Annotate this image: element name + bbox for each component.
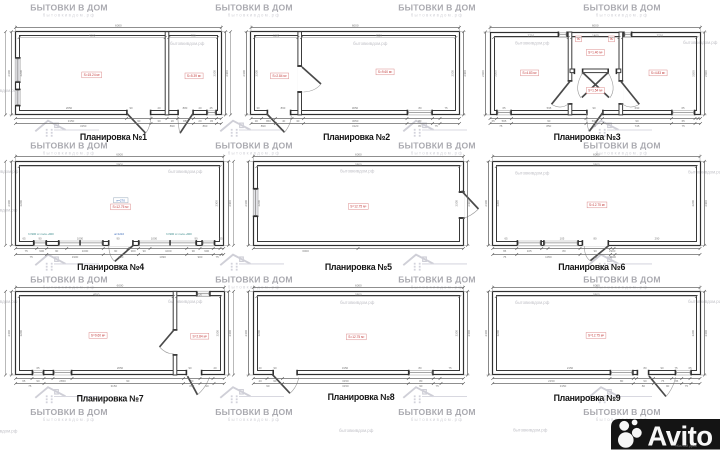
- svg-text:90: 90: [273, 379, 277, 383]
- svg-text:75: 75: [28, 384, 32, 388]
- svg-text:бытовкивдом.рф: бытовкивдом.рф: [688, 299, 720, 304]
- svg-text:2400: 2400: [244, 330, 248, 337]
- svg-text:2400: 2400: [467, 200, 471, 207]
- svg-text:690: 690: [635, 106, 640, 110]
- svg-text:2150: 2150: [567, 366, 574, 370]
- svg-text:Планировка №3: Планировка №3: [554, 132, 621, 142]
- svg-text:80: 80: [418, 124, 422, 128]
- svg-text:290: 290: [655, 237, 660, 241]
- svg-text:5800: 5800: [355, 162, 362, 166]
- svg-text:бытовкивдом.рф: бытовкивдом.рф: [339, 428, 374, 433]
- svg-text:Планировка №9: Планировка №9: [554, 393, 621, 403]
- svg-text:2200: 2200: [257, 330, 261, 337]
- svg-text:30: 30: [255, 119, 259, 123]
- svg-text:бытовкивдом.рф: бытовкивдом.рф: [168, 169, 203, 174]
- svg-text:890: 890: [189, 384, 194, 388]
- svg-text:2150: 2150: [548, 379, 555, 383]
- svg-text:2400: 2400: [7, 200, 11, 207]
- svg-text:бытовкивдом.рф: бытовкивдом.рф: [228, 13, 281, 18]
- svg-text:бытовкивдом.рф: бытовкивдом.рф: [515, 171, 550, 176]
- svg-text:бытовкивдом.рф: бытовкивдом.рф: [515, 300, 550, 305]
- svg-text:900: 900: [204, 249, 209, 253]
- svg-text:2400: 2400: [484, 200, 488, 207]
- svg-text:65: 65: [22, 237, 26, 241]
- svg-text:S=2.84 м²: S=2.84 м²: [193, 335, 207, 339]
- svg-text:65: 65: [503, 249, 507, 253]
- svg-text:90: 90: [205, 384, 209, 388]
- svg-text:1000: 1000: [77, 237, 84, 241]
- svg-text:1900: 1900: [72, 255, 79, 259]
- svg-text:1200: 1200: [196, 292, 203, 296]
- svg-text:5800: 5800: [593, 162, 600, 166]
- svg-text:65: 65: [22, 379, 26, 383]
- svg-text:75: 75: [30, 255, 34, 259]
- svg-text:20: 20: [198, 106, 202, 110]
- svg-text:2200: 2200: [255, 70, 259, 77]
- svg-text:2200: 2200: [496, 200, 500, 207]
- svg-text:80: 80: [620, 379, 624, 383]
- svg-text:БЫТОВКИ В ДОМ: БЫТОВКИ В ДОМ: [215, 141, 293, 151]
- svg-text:90: 90: [36, 379, 40, 383]
- svg-text:3150: 3150: [342, 384, 349, 388]
- svg-text:75: 75: [674, 366, 678, 370]
- svg-text:6000: 6000: [593, 152, 600, 156]
- svg-text:75: 75: [685, 384, 689, 388]
- svg-text:80: 80: [419, 379, 423, 383]
- svg-text:90: 90: [666, 384, 670, 388]
- svg-text:БЫТОВКИ В ДОМ: БЫТОВКИ В ДОМ: [215, 274, 293, 284]
- svg-text:н=270: н=270: [116, 199, 125, 203]
- svg-text:S=12.75 м²: S=12.75 м²: [112, 205, 128, 209]
- svg-text:40: 40: [258, 366, 262, 370]
- svg-text:80: 80: [593, 237, 597, 241]
- svg-text:2650: 2650: [59, 379, 66, 383]
- svg-text:80: 80: [594, 255, 598, 259]
- svg-text:6000: 6000: [355, 283, 362, 287]
- svg-text:75: 75: [448, 366, 452, 370]
- svg-text:3050: 3050: [352, 119, 359, 123]
- svg-text:S=12.75 м²: S=12.75 м²: [348, 335, 364, 339]
- svg-text:S=9.60 м²: S=9.60 м²: [91, 334, 105, 338]
- svg-text:860: 860: [203, 124, 208, 128]
- svg-text:20: 20: [213, 366, 217, 370]
- svg-text:2650: 2650: [66, 106, 73, 110]
- svg-text:2400: 2400: [481, 70, 485, 77]
- svg-text:80: 80: [418, 366, 422, 370]
- svg-text:3120: 3120: [352, 124, 359, 128]
- svg-text:90: 90: [547, 119, 551, 123]
- svg-text:910: 910: [118, 255, 123, 259]
- svg-text:1180: 1180: [273, 33, 280, 37]
- svg-text:4550: 4550: [375, 33, 382, 37]
- svg-text:6000: 6000: [117, 283, 124, 287]
- svg-text:80: 80: [562, 249, 566, 253]
- svg-text:2400: 2400: [467, 330, 471, 337]
- svg-text:75: 75: [444, 106, 448, 110]
- svg-text:6000: 6000: [302, 249, 309, 253]
- svg-text:бытовкивдом.рф: бытовкивдом.рф: [353, 41, 388, 46]
- svg-text:БЫТОВКИ В ДОМ: БЫТОВКИ В ДОМ: [398, 407, 476, 417]
- svg-text:Планировка №6: Планировка №6: [558, 262, 625, 272]
- svg-text:90: 90: [188, 366, 192, 370]
- svg-text:2400: 2400: [704, 70, 708, 77]
- svg-text:90: 90: [143, 249, 147, 253]
- svg-text:90: 90: [126, 379, 130, 383]
- svg-text:3150: 3150: [342, 366, 349, 370]
- svg-text:6000: 6000: [115, 23, 122, 27]
- svg-text:S=15.24 м²: S=15.24 м²: [84, 73, 100, 77]
- svg-text:595: 595: [547, 106, 552, 110]
- svg-text:БЫТОВКИ В ДОМ: БЫТОВКИ В ДОМ: [398, 2, 476, 12]
- svg-text:90: 90: [266, 384, 270, 388]
- svg-text:БЫТОВКИ В ДОМ: БЫТОВКИ В ДОМ: [30, 141, 108, 151]
- svg-text:3150: 3150: [68, 119, 75, 123]
- svg-text:бытовкивдом.рф: бытовкивдом.рф: [340, 300, 375, 305]
- svg-text:2400: 2400: [228, 330, 232, 337]
- svg-text:90: 90: [129, 106, 133, 110]
- svg-text:3150: 3150: [560, 384, 567, 388]
- svg-text:20: 20: [171, 119, 175, 123]
- svg-text:75: 75: [25, 249, 29, 253]
- svg-text:890: 890: [261, 124, 266, 128]
- svg-text:БЫТОВКИ В ДОМ: БЫТОВКИ В ДОМ: [30, 2, 108, 12]
- svg-text:2200: 2200: [691, 200, 695, 207]
- svg-text:бытовкивдом.рф: бытовкивдом.рф: [228, 151, 281, 156]
- svg-text:30: 30: [296, 119, 300, 123]
- svg-text:860: 860: [266, 119, 271, 123]
- svg-text:80: 80: [642, 384, 646, 388]
- svg-text:880: 880: [183, 119, 188, 123]
- svg-text:2710: 2710: [528, 33, 535, 37]
- svg-text:65: 65: [681, 106, 685, 110]
- svg-text:2400: 2400: [228, 200, 232, 207]
- svg-text:бытовкивдом.рф: бытовкивдом.рф: [513, 428, 548, 433]
- svg-text:h=900 от пола +900: h=900 от пола +900: [166, 232, 192, 236]
- svg-text:БЫТОВКИ В ДОМ: БЫТОВКИ В ДОМ: [583, 407, 661, 417]
- svg-text:45: 45: [210, 119, 214, 123]
- svg-text:2200: 2200: [451, 70, 455, 77]
- svg-text:20: 20: [157, 106, 161, 110]
- svg-text:90: 90: [114, 249, 118, 253]
- svg-text:1090: 1090: [159, 255, 166, 259]
- svg-text:1000: 1000: [82, 249, 89, 253]
- svg-text:860: 860: [281, 106, 286, 110]
- svg-text:бытовкивдом.рф: бытовкивдом.рф: [596, 13, 649, 18]
- svg-text:Планировка №2: Планировка №2: [323, 132, 390, 142]
- svg-text:S=12.75 м²: S=12.75 м²: [589, 203, 605, 207]
- svg-text:5800: 5800: [593, 292, 600, 296]
- svg-text:2200: 2200: [496, 330, 500, 337]
- svg-text:75: 75: [661, 379, 665, 383]
- svg-text:S=4.83 м²: S=4.83 м²: [522, 71, 536, 75]
- svg-text:75: 75: [503, 255, 507, 259]
- svg-text:2900: 2900: [610, 255, 617, 259]
- svg-text:745: 745: [635, 124, 640, 128]
- svg-text:4500: 4500: [93, 292, 100, 296]
- svg-text:Планировка №7: Планировка №7: [77, 394, 144, 404]
- svg-text:2200: 2200: [212, 70, 216, 77]
- svg-text:S=1.40 м²: S=1.40 м²: [588, 51, 602, 55]
- svg-text:2650: 2650: [117, 366, 124, 370]
- svg-text:3050: 3050: [352, 106, 359, 110]
- svg-text:5800: 5800: [355, 292, 362, 296]
- svg-text:690: 690: [592, 119, 597, 123]
- svg-text:S=12.75 м²: S=12.75 м²: [350, 205, 366, 209]
- svg-text:бытовкивдом.рф: бытовкивдом.рф: [43, 13, 96, 18]
- svg-text:90: 90: [137, 119, 141, 123]
- svg-text:6000: 6000: [355, 152, 362, 156]
- svg-text:3150: 3150: [111, 384, 118, 388]
- svg-text:850: 850: [546, 124, 551, 128]
- svg-text:780: 780: [191, 33, 196, 37]
- svg-text:2400: 2400: [242, 70, 246, 77]
- svg-text:90: 90: [660, 366, 664, 370]
- svg-text:Планировка №5: Планировка №5: [325, 262, 392, 272]
- svg-text:БЫТОВКИ В ДОМ: БЫТОВКИ В ДОМ: [215, 407, 293, 417]
- svg-text:Планировка №4: Планировка №4: [77, 262, 144, 272]
- svg-text:S=2.84 м²: S=2.84 м²: [272, 74, 286, 78]
- svg-text:65: 65: [504, 237, 508, 241]
- svg-text:65: 65: [688, 366, 692, 370]
- svg-text:2200: 2200: [455, 330, 459, 337]
- svg-text:6000: 6000: [352, 23, 359, 27]
- svg-text:75: 75: [435, 384, 439, 388]
- svg-text:20: 20: [198, 119, 202, 123]
- svg-text:2200: 2200: [691, 330, 695, 337]
- svg-text:Планировка №1: Планировка №1: [80, 132, 147, 142]
- svg-text:2200: 2200: [455, 200, 459, 207]
- svg-text:ш=1210: ш=1210: [114, 232, 125, 236]
- svg-text:2200: 2200: [19, 70, 23, 77]
- svg-text:90: 90: [592, 106, 596, 110]
- svg-text:2710: 2710: [657, 33, 664, 37]
- svg-text:2400: 2400: [704, 200, 708, 207]
- svg-text:65: 65: [492, 119, 496, 123]
- svg-text:6000: 6000: [593, 283, 600, 287]
- svg-text:БЫТОВКИ В ДОМ: БЫТОВКИ В ДОМ: [30, 274, 108, 284]
- svg-text:90: 90: [116, 237, 120, 241]
- svg-text:S=4.83 м²: S=4.83 м²: [651, 71, 665, 75]
- svg-text:S=5.39 м²: S=5.39 м²: [187, 74, 201, 78]
- svg-text:2400: 2400: [7, 70, 11, 77]
- svg-text:2200: 2200: [19, 330, 23, 337]
- svg-text:105: 105: [527, 249, 532, 253]
- svg-text:2400: 2400: [7, 330, 11, 337]
- svg-text:880: 880: [183, 106, 188, 110]
- svg-text:БЫТОВКИ В ДОМ: БЫТОВКИ В ДОМ: [398, 141, 476, 151]
- svg-text:бытовкивдом.рф: бытовкивдом.рф: [411, 417, 464, 422]
- svg-text:90: 90: [419, 384, 423, 388]
- svg-text:бытовкивдом.рф: бытовкивдом.рф: [411, 13, 464, 18]
- svg-text:БЫТОВКИ В ДОМ: БЫТОВКИ В ДОМ: [583, 2, 661, 12]
- svg-text:S=12.75 м²: S=12.75 м²: [588, 334, 604, 338]
- svg-text:80: 80: [418, 106, 422, 110]
- svg-text:5800: 5800: [116, 162, 123, 166]
- svg-text:S=1.54 м²: S=1.54 м²: [588, 89, 602, 93]
- svg-text:2900: 2900: [609, 249, 616, 253]
- svg-text:1400: 1400: [592, 33, 599, 37]
- svg-text:4200: 4200: [89, 33, 96, 37]
- svg-text:Планировка №8: Планировка №8: [328, 392, 395, 402]
- svg-text:2400: 2400: [244, 200, 248, 207]
- svg-text:2400: 2400: [484, 330, 488, 337]
- svg-text:75: 75: [499, 124, 503, 128]
- svg-text:2200: 2200: [494, 70, 498, 77]
- svg-text:90: 90: [643, 379, 647, 383]
- svg-text:20: 20: [190, 379, 194, 383]
- svg-text:3150: 3150: [342, 379, 349, 383]
- svg-text:90: 90: [192, 249, 196, 253]
- svg-text:90: 90: [594, 249, 598, 253]
- svg-text:1000: 1000: [151, 237, 158, 241]
- svg-text:105: 105: [560, 237, 565, 241]
- svg-text:БЫТОВКИ В ДОМ: БЫТОВКИ В ДОМ: [215, 2, 293, 12]
- svg-text:1000: 1000: [165, 249, 172, 253]
- svg-text:бытовкивдом.рф: бытовкивдом.рф: [515, 41, 550, 46]
- svg-text:S=9.60 м²: S=9.60 м²: [378, 70, 392, 74]
- svg-text:80: 80: [643, 366, 647, 370]
- svg-text:65: 65: [682, 119, 686, 123]
- svg-text:бытовкивдом.рф: бытовкивдом.рф: [596, 151, 649, 156]
- svg-text:900: 900: [39, 249, 44, 253]
- svg-text:2200: 2200: [19, 200, 23, 207]
- svg-text:890: 890: [170, 124, 175, 128]
- svg-text:бытовкивдом.рф: бытовкивдом.рф: [43, 151, 96, 156]
- svg-text:900: 900: [198, 255, 203, 259]
- svg-text:30: 30: [157, 119, 161, 123]
- svg-text:бытовкивдом.рф: бытовкивдом.рф: [228, 417, 281, 422]
- svg-text:бытовкивдом.рф: бытовкивдом.рф: [170, 41, 205, 46]
- svg-text:65: 65: [219, 237, 223, 241]
- svg-text:30: 30: [256, 106, 260, 110]
- svg-text:2200: 2200: [692, 70, 696, 77]
- svg-text:2200: 2200: [215, 330, 219, 337]
- svg-text:БЫТОВКИ В ДОМ: БЫТОВКИ В ДОМ: [30, 407, 108, 417]
- svg-text:90: 90: [593, 124, 597, 128]
- svg-text:6000: 6000: [116, 152, 123, 156]
- svg-text:2400: 2400: [225, 70, 229, 77]
- svg-text:бытовкивдом.рф: бытовкивдом.рф: [688, 170, 720, 175]
- svg-text:3150: 3150: [80, 124, 87, 128]
- svg-text:2400: 2400: [704, 330, 708, 337]
- svg-text:2300: 2300: [215, 200, 219, 207]
- svg-text:595: 595: [502, 119, 507, 123]
- svg-text:65: 65: [36, 366, 40, 370]
- svg-text:бытовкивдом.рф: бытовкивдом.рф: [340, 169, 375, 174]
- svg-text:40: 40: [258, 379, 262, 383]
- svg-text:90: 90: [194, 237, 198, 241]
- svg-text:45: 45: [209, 106, 213, 110]
- svg-text:40: 40: [282, 119, 286, 123]
- svg-text:90: 90: [635, 119, 639, 123]
- svg-text:бытовкивдом.рф: бытовкивдом.рф: [43, 417, 96, 422]
- svg-text:h=900 от пола +900: h=900 от пола +900: [28, 232, 54, 236]
- svg-text:90: 90: [38, 237, 42, 241]
- svg-text:1050: 1050: [545, 255, 552, 259]
- svg-text:бытовкивдом.рф: бытовкивдом.рф: [0, 429, 18, 434]
- svg-text:900: 900: [131, 249, 136, 253]
- svg-text:2200: 2200: [257, 200, 261, 207]
- svg-text:БЫТОВКИ В ДОМ: БЫТОВКИ В ДОМ: [398, 274, 476, 284]
- svg-text:2400: 2400: [463, 70, 467, 77]
- svg-text:бытовкивдом.рф: бытовкивдом.рф: [411, 151, 464, 156]
- svg-text:90: 90: [55, 249, 59, 253]
- svg-text:80: 80: [418, 119, 422, 123]
- svg-text:6000: 6000: [592, 23, 599, 27]
- svg-text:65: 65: [675, 379, 679, 383]
- svg-text:75: 75: [682, 124, 686, 128]
- svg-text:75: 75: [216, 255, 220, 259]
- svg-text:75: 75: [435, 124, 439, 128]
- svg-text:Жилой дом: Жилой дом: [675, 443, 696, 448]
- svg-text:90: 90: [273, 366, 277, 370]
- svg-text:65: 65: [502, 106, 506, 110]
